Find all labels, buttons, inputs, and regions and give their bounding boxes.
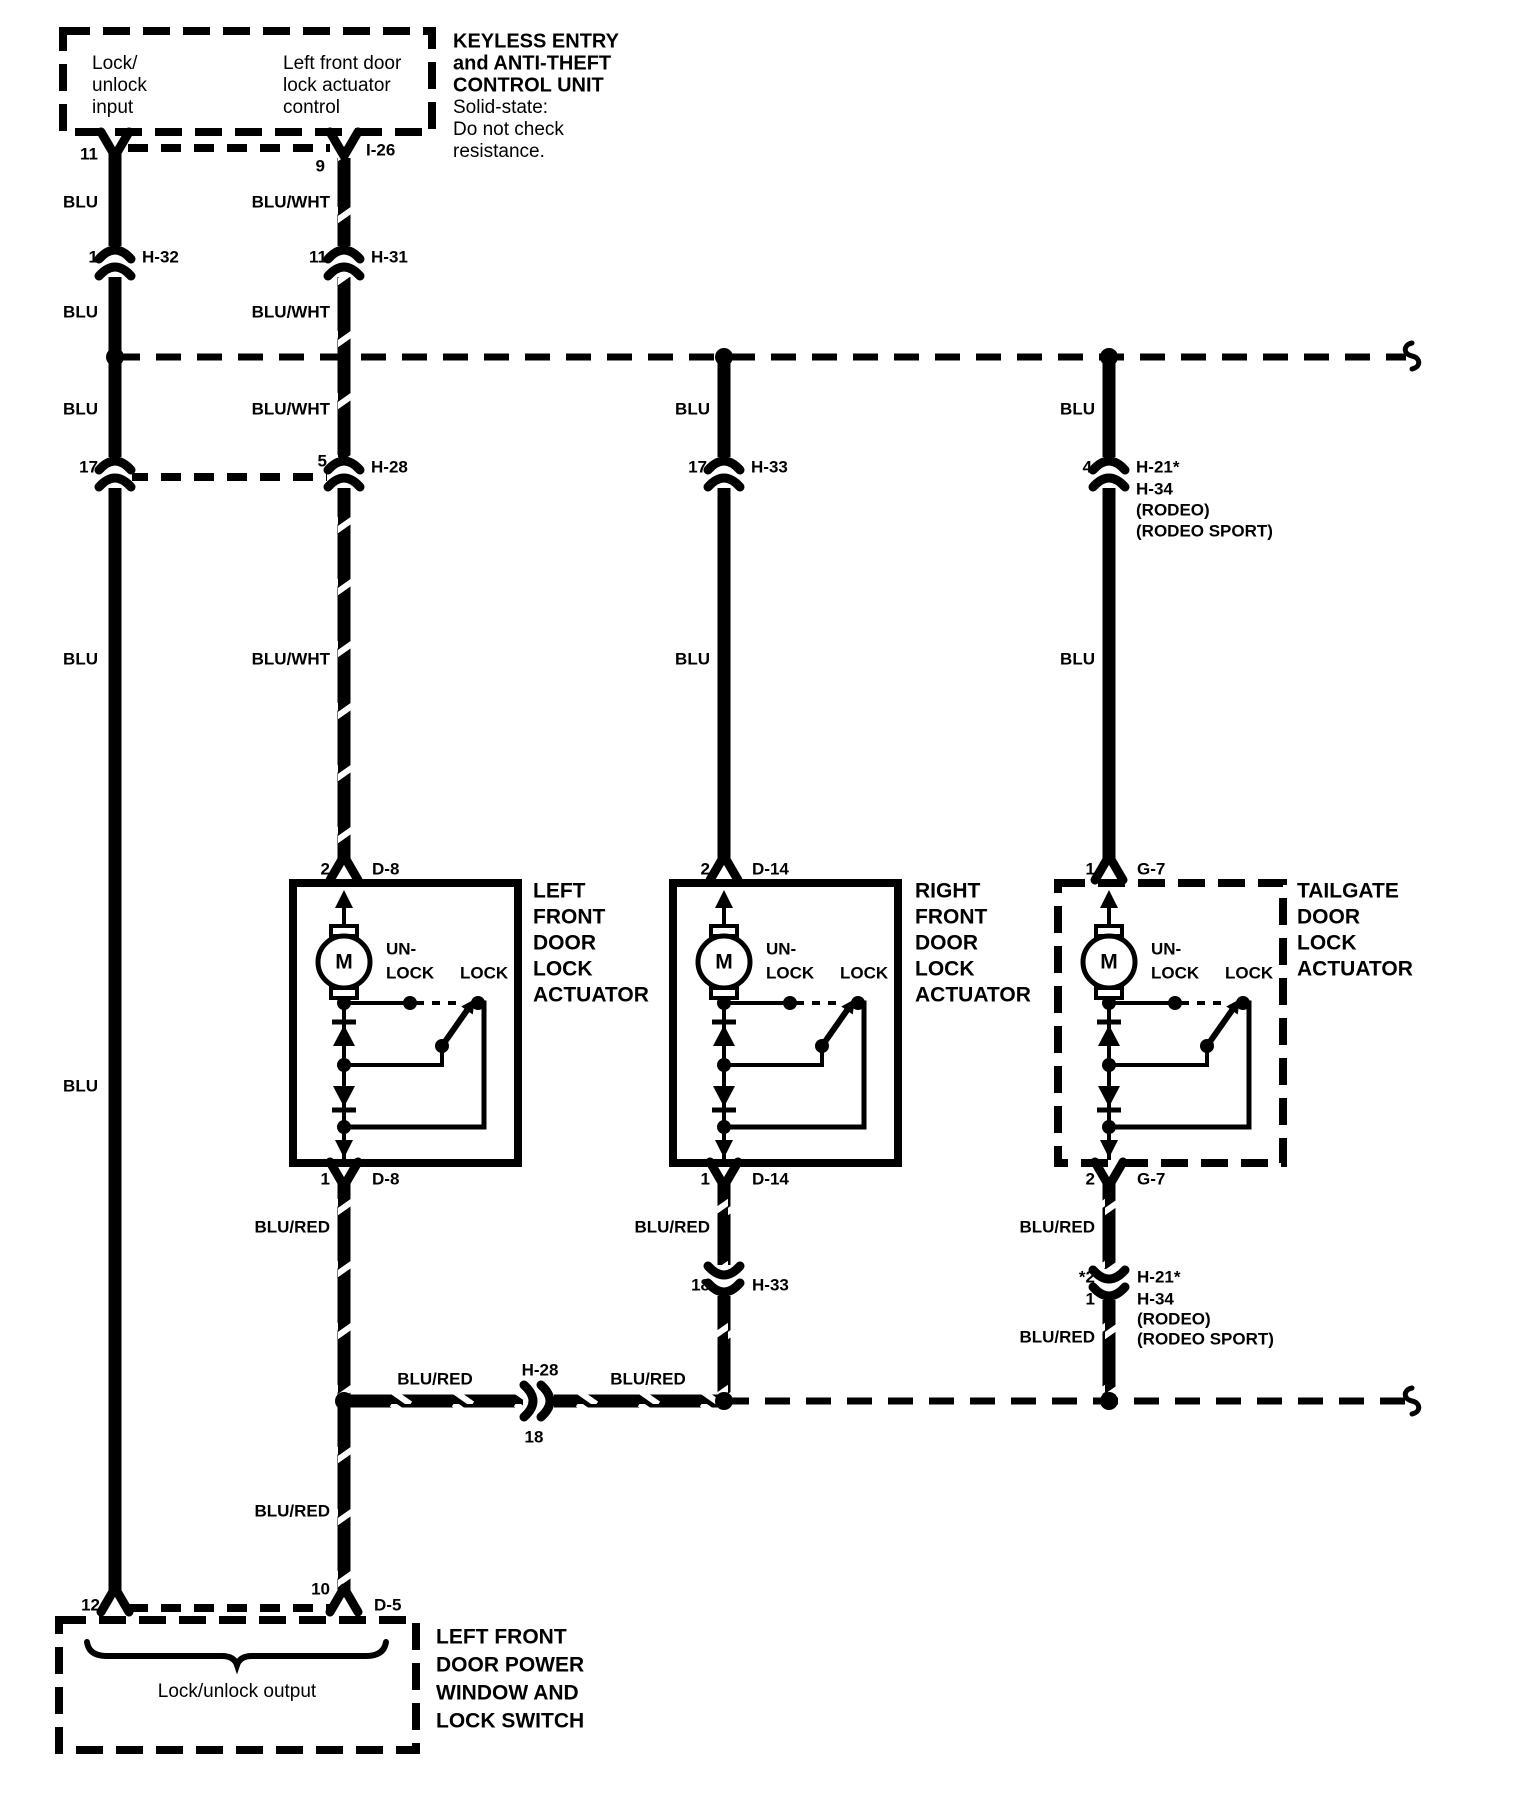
pin-h28-inline: 18 bbox=[525, 1427, 544, 1446]
wire-label-blu-wht: BLU/WHT bbox=[252, 399, 331, 418]
connector-h32-icon bbox=[98, 246, 132, 277]
left-front-door-lock-actuator-title: LEFT FRONT DOOR LOCK ACTUATOR bbox=[533, 880, 649, 1007]
svg-text:and ANTI-THEFT: and ANTI-THEFT bbox=[453, 52, 611, 74]
lock-label: LOCK bbox=[460, 963, 509, 982]
svg-text:DOOR: DOOR bbox=[533, 932, 596, 955]
svg-text:Solid-state:: Solid-state: bbox=[453, 97, 548, 118]
note-rodeo-lower: (RODEO) bbox=[1137, 1309, 1211, 1328]
wire-label-blu-red: BLU/RED bbox=[634, 1217, 710, 1236]
wire-label-blu: BLU bbox=[1060, 399, 1095, 418]
tailgate-door-lock-actuator: M UN- LOCK LOCK bbox=[1058, 883, 1283, 1163]
diode-icon bbox=[1098, 1086, 1120, 1107]
connector-i26-label: I-26 bbox=[366, 140, 395, 159]
pin-h21-lower-a: *2 bbox=[1079, 1267, 1095, 1286]
connector-h21-label: H-21* bbox=[1136, 457, 1180, 476]
pin-act2-bottom: 1 bbox=[701, 1169, 710, 1188]
wire-label-blu: BLU bbox=[63, 1076, 98, 1095]
switch-lever bbox=[442, 1006, 470, 1046]
pin-h28: 5 bbox=[318, 451, 327, 470]
connector-h33-lower-label: H-33 bbox=[752, 1275, 789, 1294]
keyless-control-unit-box: Lock/ unlock input Left front door lock … bbox=[63, 31, 432, 132]
junction-dot bbox=[1100, 348, 1118, 366]
connector-act3-top: G-7 bbox=[1137, 859, 1165, 878]
pin-act3-top: 1 bbox=[1086, 859, 1095, 878]
connector-h33-lower-icon bbox=[707, 1265, 741, 1296]
lock-label: LOCK bbox=[1225, 963, 1274, 982]
lock-label: LOCK bbox=[840, 963, 889, 982]
svg-text:Do not check: Do not check bbox=[453, 119, 564, 140]
arrow-down-icon bbox=[1100, 1140, 1118, 1158]
svg-text:LOCK: LOCK bbox=[386, 963, 435, 982]
diode-icon bbox=[333, 1086, 355, 1107]
diode-icon bbox=[713, 1086, 735, 1107]
svg-text:LOCK: LOCK bbox=[915, 958, 975, 981]
continuation-squiggle-bottom bbox=[1405, 1388, 1419, 1414]
right-front-door-lock-actuator: M UN- LOCK LOCK bbox=[673, 883, 898, 1163]
svg-text:LOCK: LOCK bbox=[766, 963, 815, 982]
connector-act2-bottom: D-14 bbox=[752, 1169, 789, 1188]
pin-act2-top: 2 bbox=[701, 859, 710, 878]
svg-text:KEYLESS ENTRY: KEYLESS ENTRY bbox=[453, 30, 620, 52]
connector-h21-lower-label: H-21* bbox=[1137, 1267, 1181, 1286]
terminal-split-sw-left-icon bbox=[101, 1588, 129, 1612]
svg-text:WINDOW AND: WINDOW AND bbox=[436, 1682, 579, 1705]
svg-text:input: input bbox=[92, 97, 134, 118]
pin-h21-lower-b: 1 bbox=[1086, 1289, 1095, 1308]
connector-act2-top: D-14 bbox=[752, 859, 789, 878]
connector-h32-label: H-32 bbox=[142, 247, 179, 266]
wire-label-blu-wht: BLU/WHT bbox=[252, 302, 331, 321]
connector-act1-bottom: D-8 bbox=[372, 1169, 399, 1188]
svg-text:CONTROL UNIT: CONTROL UNIT bbox=[453, 74, 604, 96]
continuation-squiggle-top bbox=[1405, 343, 1419, 369]
pin-h21: 4 bbox=[1083, 457, 1093, 476]
diode-icon bbox=[333, 1025, 355, 1046]
control-unit-input-label: Lock/ bbox=[92, 53, 138, 74]
switch-lever bbox=[822, 1006, 850, 1046]
svg-text:ACTUATOR: ACTUATOR bbox=[915, 984, 1031, 1007]
pin-act1-top: 2 bbox=[321, 859, 330, 878]
note-rodeo-sport: (RODEO SPORT) bbox=[1136, 521, 1273, 540]
wire-label-blu-wht: BLU/WHT bbox=[252, 649, 331, 668]
pin-h33: 17 bbox=[688, 457, 707, 476]
pin-act3-bottom: 2 bbox=[1086, 1169, 1095, 1188]
unlock-label: UN- bbox=[766, 939, 796, 958]
lock-unlock-output-label: Lock/unlock output bbox=[158, 1681, 317, 1702]
wire-label-blu-red: BLU/RED bbox=[254, 1501, 330, 1520]
svg-text:LEFT: LEFT bbox=[533, 880, 586, 903]
wire-blu-red-col2 bbox=[338, 1182, 351, 1592]
connector-h28-inline-label: H-28 bbox=[522, 1360, 559, 1379]
connector-h33-icon bbox=[707, 457, 741, 488]
connector-h21-icon bbox=[1092, 457, 1126, 488]
connector-act3-bottom: G-7 bbox=[1137, 1169, 1165, 1188]
wire-label-blu: BLU bbox=[63, 399, 98, 418]
motor-label: M bbox=[715, 951, 733, 974]
unlock-label: UN- bbox=[1151, 939, 1181, 958]
wire-label-blu-red: BLU/RED bbox=[1019, 1217, 1095, 1236]
junction-dot bbox=[715, 1392, 733, 1410]
switch-lever bbox=[1207, 1006, 1235, 1046]
svg-text:FRONT: FRONT bbox=[915, 906, 987, 929]
lock-switch-title: LEFT FRONT DOOR POWER WINDOW AND LOCK SW… bbox=[436, 1626, 584, 1733]
pin-act1-bottom: 1 bbox=[321, 1169, 330, 1188]
connector-h34-label: H-34 bbox=[1136, 479, 1173, 498]
pin-h31: 11 bbox=[309, 247, 327, 266]
brace-icon bbox=[87, 1642, 386, 1665]
connector-h31-label: H-31 bbox=[371, 247, 408, 266]
svg-text:RIGHT: RIGHT bbox=[915, 880, 981, 903]
wiring-diagram: Lock/ unlock input Left front door lock … bbox=[0, 0, 1520, 1796]
svg-text:resistance.: resistance. bbox=[453, 141, 545, 162]
connector-h31-icon bbox=[327, 246, 361, 277]
connector-h21-lower-icon bbox=[1092, 1269, 1126, 1300]
wire-label-blu: BLU bbox=[675, 399, 710, 418]
pin-12: 12 bbox=[81, 1595, 100, 1614]
svg-text:control: control bbox=[283, 97, 340, 118]
motor-label: M bbox=[335, 951, 353, 974]
svg-text:ACTUATOR: ACTUATOR bbox=[533, 984, 649, 1007]
svg-text:LOCK: LOCK bbox=[533, 958, 593, 981]
wire-label-blu-red: BLU/RED bbox=[254, 1217, 330, 1236]
svg-text:LOCK SWITCH: LOCK SWITCH bbox=[436, 1710, 584, 1733]
control-unit-title: KEYLESS ENTRY and ANTI-THEFT CONTROL UNI… bbox=[453, 30, 620, 162]
tailgate-door-lock-actuator-title: TAILGATE DOOR LOCK ACTUATOR bbox=[1297, 880, 1413, 981]
note-rodeo-sport-lower: (RODEO SPORT) bbox=[1137, 1329, 1274, 1348]
wire-label-blu-red: BLU/RED bbox=[1019, 1327, 1095, 1346]
svg-text:FRONT: FRONT bbox=[533, 906, 605, 929]
wire-label-blu: BLU bbox=[63, 302, 98, 321]
pin-10: 10 bbox=[311, 1579, 330, 1598]
wire-label-blu-red: BLU/RED bbox=[397, 1369, 473, 1388]
svg-text:LEFT FRONT: LEFT FRONT bbox=[436, 1626, 567, 1649]
svg-text:LOCK: LOCK bbox=[1297, 932, 1357, 955]
terminal-split-act3-top-icon bbox=[1095, 856, 1123, 880]
svg-text:DOOR: DOOR bbox=[1297, 906, 1360, 929]
connector-h28-inline-icon bbox=[523, 1384, 554, 1418]
svg-text:DOOR POWER: DOOR POWER bbox=[436, 1654, 584, 1677]
right-front-door-lock-actuator-title: RIGHT FRONT DOOR LOCK ACTUATOR bbox=[915, 880, 1031, 1007]
pin-11: 11 bbox=[80, 144, 98, 163]
connector-act1-top: D-8 bbox=[372, 859, 399, 878]
note-rodeo: (RODEO) bbox=[1136, 500, 1210, 519]
terminal-split-act2-top-icon bbox=[710, 856, 738, 880]
pin-9: 9 bbox=[316, 156, 325, 175]
junction-dot bbox=[106, 348, 124, 366]
left-front-door-lock-actuator: M UN- LOCK LOCK bbox=[293, 883, 518, 1163]
junction-dot bbox=[1100, 1392, 1118, 1410]
motor-label: M bbox=[1100, 951, 1118, 974]
junction-dot bbox=[715, 348, 733, 366]
wire-label-blu: BLU bbox=[1060, 649, 1095, 668]
wire-label-blu-wht: BLU/WHT bbox=[252, 192, 331, 211]
pin-h32: 1 bbox=[89, 247, 98, 266]
junction-dot bbox=[335, 1392, 353, 1410]
svg-text:TAILGATE: TAILGATE bbox=[1297, 880, 1399, 903]
diode-icon bbox=[713, 1025, 735, 1046]
wire-label-blu: BLU bbox=[675, 649, 710, 668]
connector-h28-label: H-28 bbox=[371, 457, 408, 476]
svg-text:ACTUATOR: ACTUATOR bbox=[1297, 958, 1413, 981]
terminal-split-act1-top-icon bbox=[330, 856, 358, 880]
connector-h33-label: H-33 bbox=[751, 457, 788, 476]
wiring-diagram-page: Lock/ unlock input Left front door lock … bbox=[0, 0, 1520, 1796]
svg-text:unlock: unlock bbox=[92, 75, 147, 96]
control-unit-output-label: Left front door bbox=[283, 53, 402, 74]
diode-icon bbox=[1098, 1025, 1120, 1046]
connector-d5-label: D-5 bbox=[374, 1595, 401, 1614]
arrow-down-icon bbox=[335, 1140, 353, 1158]
wire-label-blu: BLU bbox=[63, 192, 98, 211]
unlock-label: UN- bbox=[386, 939, 416, 958]
connector-h34-lower-label: H-34 bbox=[1137, 1289, 1174, 1308]
lock-switch-box: Lock/unlock output bbox=[59, 1620, 416, 1750]
connector-pin17-icon bbox=[98, 457, 132, 488]
svg-text:LOCK: LOCK bbox=[1151, 963, 1200, 982]
pin-17-col1: 17 bbox=[79, 457, 98, 476]
wire-label-blu: BLU bbox=[63, 649, 98, 668]
svg-text:DOOR: DOOR bbox=[915, 932, 978, 955]
pin-h33-lower: 18 bbox=[691, 1275, 710, 1294]
wire-label-blu-red: BLU/RED bbox=[610, 1369, 686, 1388]
terminal-split-sw-right-icon bbox=[330, 1588, 358, 1612]
connector-h28-icon bbox=[327, 457, 361, 488]
svg-text:lock actuator: lock actuator bbox=[283, 75, 391, 96]
arrow-down-icon bbox=[715, 1140, 733, 1158]
